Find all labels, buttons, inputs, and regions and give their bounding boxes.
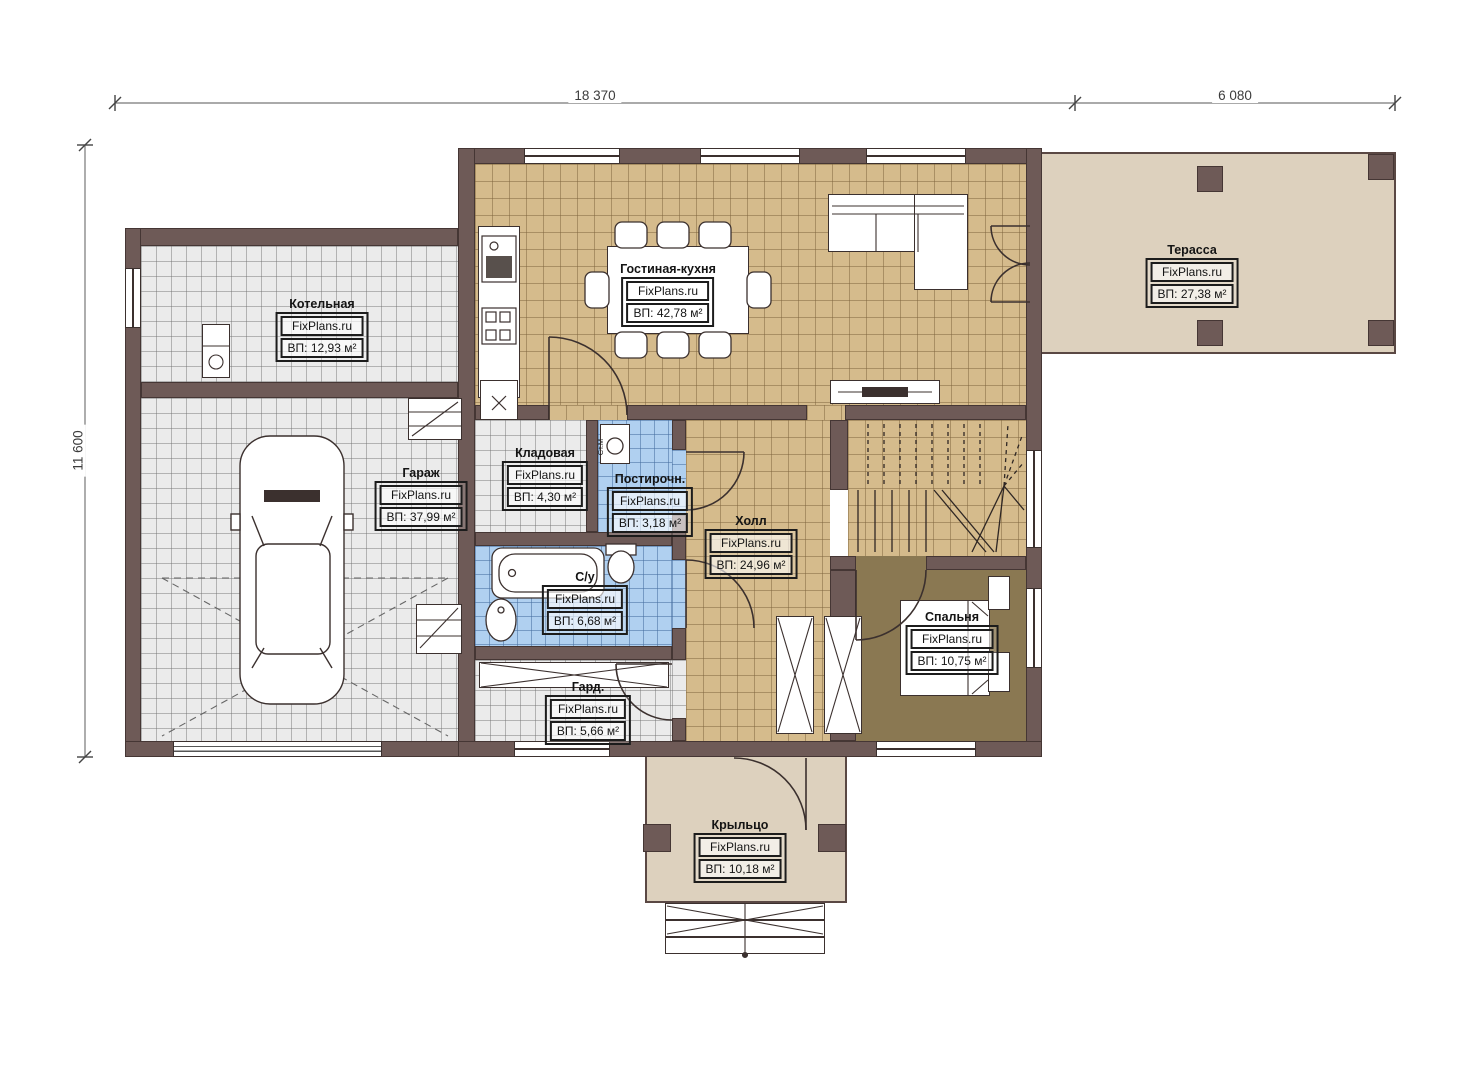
brand-watermark: FixPlans.ru — [507, 465, 583, 485]
room-info-box: FixPlans.ru ВП: 37,99 м² — [375, 481, 468, 531]
brand-watermark: FixPlans.ru — [281, 316, 364, 336]
room-name: Гард. — [572, 680, 605, 694]
room-area: ВП: 42,78 м² — [627, 303, 710, 323]
floor-plan-canvas: 18 370 6 080 11 600 Ст.М Котельная FixPl… — [0, 0, 1473, 1080]
room-label-garazh: Гараж FixPlans.ru ВП: 37,99 м² — [375, 466, 468, 531]
room-label-postirochnaya: Постирочн. FixPlans.ru ВП: 3,18 м² — [607, 472, 693, 537]
room-name: Терасса — [1167, 243, 1217, 257]
room-label-terrassa: Терасса FixPlans.ru ВП: 27,38 м² — [1146, 243, 1239, 308]
room-label-spalnya: Спальня FixPlans.ru ВП: 10,75 м² — [906, 610, 999, 675]
room-label-kotelnaya: Котельная FixPlans.ru ВП: 12,93 м² — [276, 297, 369, 362]
room-area: ВП: 5,66 м² — [550, 721, 626, 741]
room-info-box: FixPlans.ru ВП: 27,38 м² — [1146, 258, 1239, 308]
brand-watermark: FixPlans.ru — [627, 281, 710, 301]
room-name: С/у — [575, 570, 594, 584]
room-info-box: FixPlans.ru ВП: 10,18 м² — [694, 833, 787, 883]
room-label-garderobnaya: Гард. FixPlans.ru ВП: 5,66 м² — [545, 680, 631, 745]
brand-watermark: FixPlans.ru — [1151, 262, 1234, 282]
washing-machine-tag: Ст.М — [596, 432, 626, 462]
room-area: ВП: 37,99 м² — [380, 507, 463, 527]
room-label-gostinaya-kuhnya: Гостиная-кухня FixPlans.ru ВП: 42,78 м² — [620, 262, 716, 327]
room-area: ВП: 10,18 м² — [699, 859, 782, 879]
dimension-terrace-width: 6 080 — [1212, 88, 1258, 103]
brand-watermark: FixPlans.ru — [699, 837, 782, 857]
room-name: Котельная — [289, 297, 354, 311]
room-area: ВП: 3,18 м² — [612, 513, 688, 533]
room-info-box: FixPlans.ru ВП: 12,93 м² — [276, 312, 369, 362]
room-info-box: FixPlans.ru ВП: 6,68 м² — [542, 585, 628, 635]
brand-watermark: FixPlans.ru — [380, 485, 463, 505]
room-name: Гостиная-кухня — [620, 262, 716, 276]
room-info-box: FixPlans.ru ВП: 4,30 м² — [502, 461, 588, 511]
room-info-box: FixPlans.ru ВП: 10,75 м² — [906, 625, 999, 675]
room-label-su: С/у FixPlans.ru ВП: 6,68 м² — [542, 570, 628, 635]
room-info-box: FixPlans.ru ВП: 3,18 м² — [607, 487, 693, 537]
room-area: ВП: 27,38 м² — [1151, 284, 1234, 304]
dimension-left-height: 11 600 — [71, 424, 86, 476]
brand-watermark: FixPlans.ru — [911, 629, 994, 649]
room-info-box: FixPlans.ru ВП: 24,96 м² — [705, 529, 798, 579]
room-name: Гараж — [402, 466, 439, 480]
car — [231, 436, 353, 704]
room-info-box: FixPlans.ru ВП: 5,66 м² — [545, 695, 631, 745]
staircase — [858, 424, 1024, 552]
room-name: Постирочн. — [615, 472, 685, 486]
room-area: ВП: 24,96 м² — [710, 555, 793, 575]
room-name: Спальня — [925, 610, 979, 624]
room-name: Крыльцо — [712, 818, 769, 832]
room-area: ВП: 4,30 м² — [507, 487, 583, 507]
kitchen-appliances — [482, 236, 516, 410]
room-info-box: FixPlans.ru ВП: 42,78 м² — [622, 277, 715, 327]
room-name: Холл — [735, 514, 766, 528]
brand-watermark: FixPlans.ru — [710, 533, 793, 553]
dimension-top-width: 18 370 — [568, 88, 621, 103]
room-label-krylco: Крыльцо FixPlans.ru ВП: 10,18 м² — [694, 818, 787, 883]
brand-watermark: FixPlans.ru — [612, 491, 688, 511]
room-area: ВП: 10,75 м² — [911, 651, 994, 671]
room-name: Кладовая — [515, 446, 575, 460]
room-label-holl: Холл FixPlans.ru ВП: 24,96 м² — [705, 514, 798, 579]
brand-watermark: FixPlans.ru — [550, 699, 626, 719]
brand-watermark: FixPlans.ru — [547, 589, 623, 609]
room-area: ВП: 6,68 м² — [547, 611, 623, 631]
room-area: ВП: 12,93 м² — [281, 338, 364, 358]
room-label-kladovaya: Кладовая FixPlans.ru ВП: 4,30 м² — [502, 446, 588, 511]
